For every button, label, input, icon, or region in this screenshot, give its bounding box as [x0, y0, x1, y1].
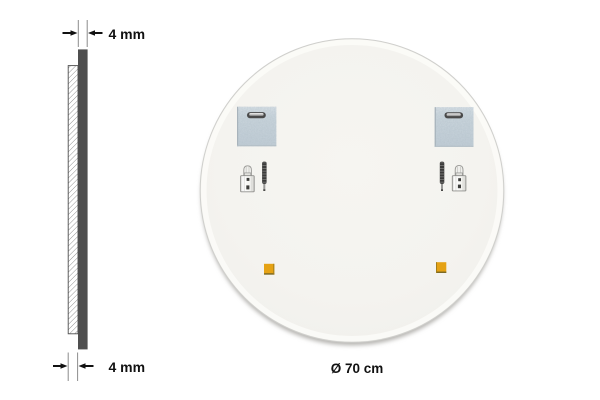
svg-text:4 mm: 4 mm [109, 359, 146, 375]
svg-text:Ø 70 cm: Ø 70 cm [331, 361, 384, 376]
svg-text:4 mm: 4 mm [109, 26, 146, 42]
